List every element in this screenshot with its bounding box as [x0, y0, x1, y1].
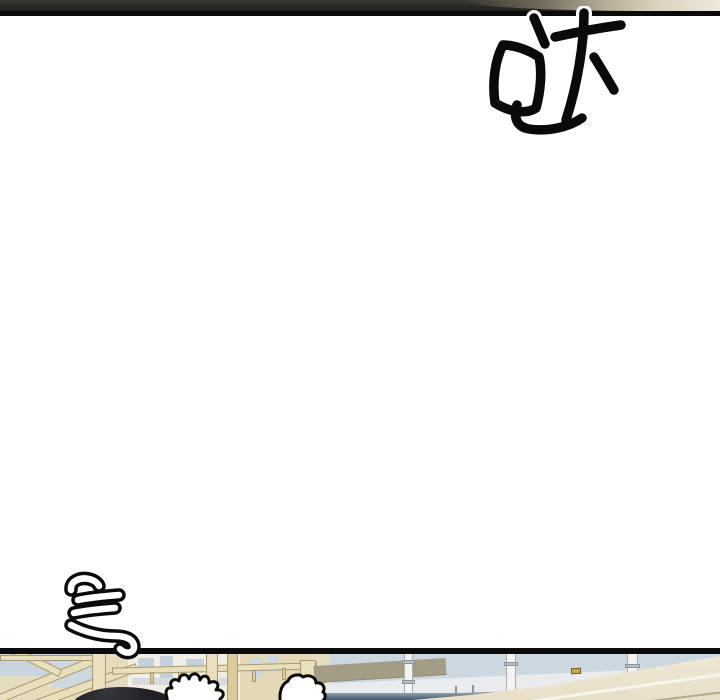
mullion-clip [402, 680, 415, 684]
window-latch-gold [571, 668, 581, 675]
sfx-da-character [470, 6, 626, 138]
spread-hand [162, 672, 232, 700]
mullion-clip [504, 662, 518, 666]
mullion-clip [402, 660, 415, 664]
fist-hand [276, 672, 328, 700]
scaffold-post [252, 670, 256, 682]
scaffold-post [150, 672, 154, 684]
mullion-clip [625, 664, 640, 668]
sfx-qi-character [56, 570, 152, 662]
comic-page [0, 0, 720, 700]
